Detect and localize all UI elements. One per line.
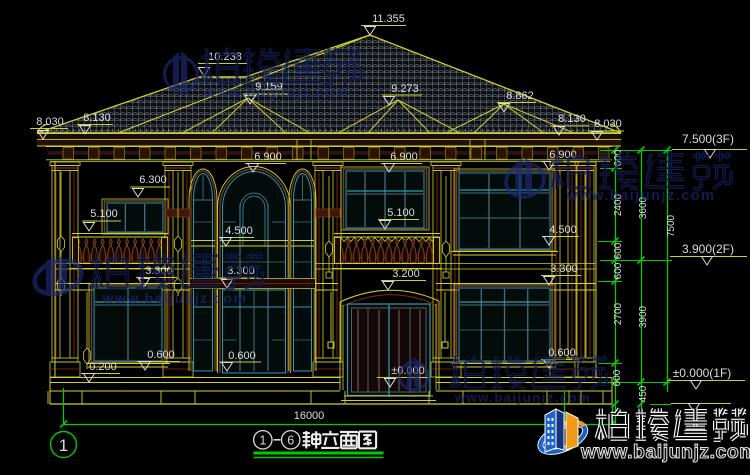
svg-text:1: 1 xyxy=(259,433,266,447)
svg-text:16000: 16000 xyxy=(294,410,325,422)
svg-text:www.baijunjz.com: www.baijunjz.com xyxy=(454,390,591,405)
svg-text:2700: 2700 xyxy=(613,302,624,325)
svg-text:450: 450 xyxy=(638,385,649,402)
svg-text:6: 6 xyxy=(287,433,294,447)
svg-text:3.900(2F): 3.900(2F) xyxy=(682,242,734,256)
svg-text:11.355: 11.355 xyxy=(372,13,405,25)
svg-text:9.273: 9.273 xyxy=(391,83,419,95)
svg-text:www.baijunjz.com: www.baijunjz.com xyxy=(565,188,715,204)
svg-text:600: 600 xyxy=(612,369,623,386)
svg-text:8.862: 8.862 xyxy=(506,90,534,102)
svg-text:0.600: 0.600 xyxy=(147,349,175,361)
svg-text:8.130: 8.130 xyxy=(558,113,586,125)
svg-text:1: 1 xyxy=(59,436,68,455)
svg-text:6.300: 6.300 xyxy=(139,174,167,186)
svg-text:4.500: 4.500 xyxy=(549,224,577,236)
svg-text:600: 600 xyxy=(613,262,624,279)
svg-text:5.100: 5.100 xyxy=(90,208,118,220)
svg-text:8.030: 8.030 xyxy=(594,118,622,130)
svg-text:6.900: 6.900 xyxy=(390,151,418,163)
svg-text:www.baijunjz.com: www.baijunjz.com xyxy=(102,290,248,306)
svg-text:3900: 3900 xyxy=(638,305,649,328)
svg-text:0.600: 0.600 xyxy=(228,350,256,362)
svg-text:600: 600 xyxy=(613,242,624,259)
svg-text:4.500: 4.500 xyxy=(225,225,253,237)
svg-text:8.030: 8.030 xyxy=(36,116,64,128)
svg-text:www.baijunjz.com: www.baijunjz.com xyxy=(580,441,750,463)
svg-text:5.100: 5.100 xyxy=(387,207,415,219)
svg-text:6.900: 6.900 xyxy=(254,151,282,163)
svg-text:3.300: 3.300 xyxy=(550,263,578,275)
svg-text:7.500(3F): 7.500(3F) xyxy=(682,132,734,146)
svg-text:8.130: 8.130 xyxy=(83,112,111,124)
svg-text:±0.000(1F): ±0.000(1F) xyxy=(673,366,732,380)
svg-text:www.baijunjz.com: www.baijunjz.com xyxy=(204,84,350,100)
svg-text:0.200: 0.200 xyxy=(89,361,117,373)
svg-text:3.200: 3.200 xyxy=(392,268,420,280)
svg-text:7500: 7500 xyxy=(666,214,677,237)
